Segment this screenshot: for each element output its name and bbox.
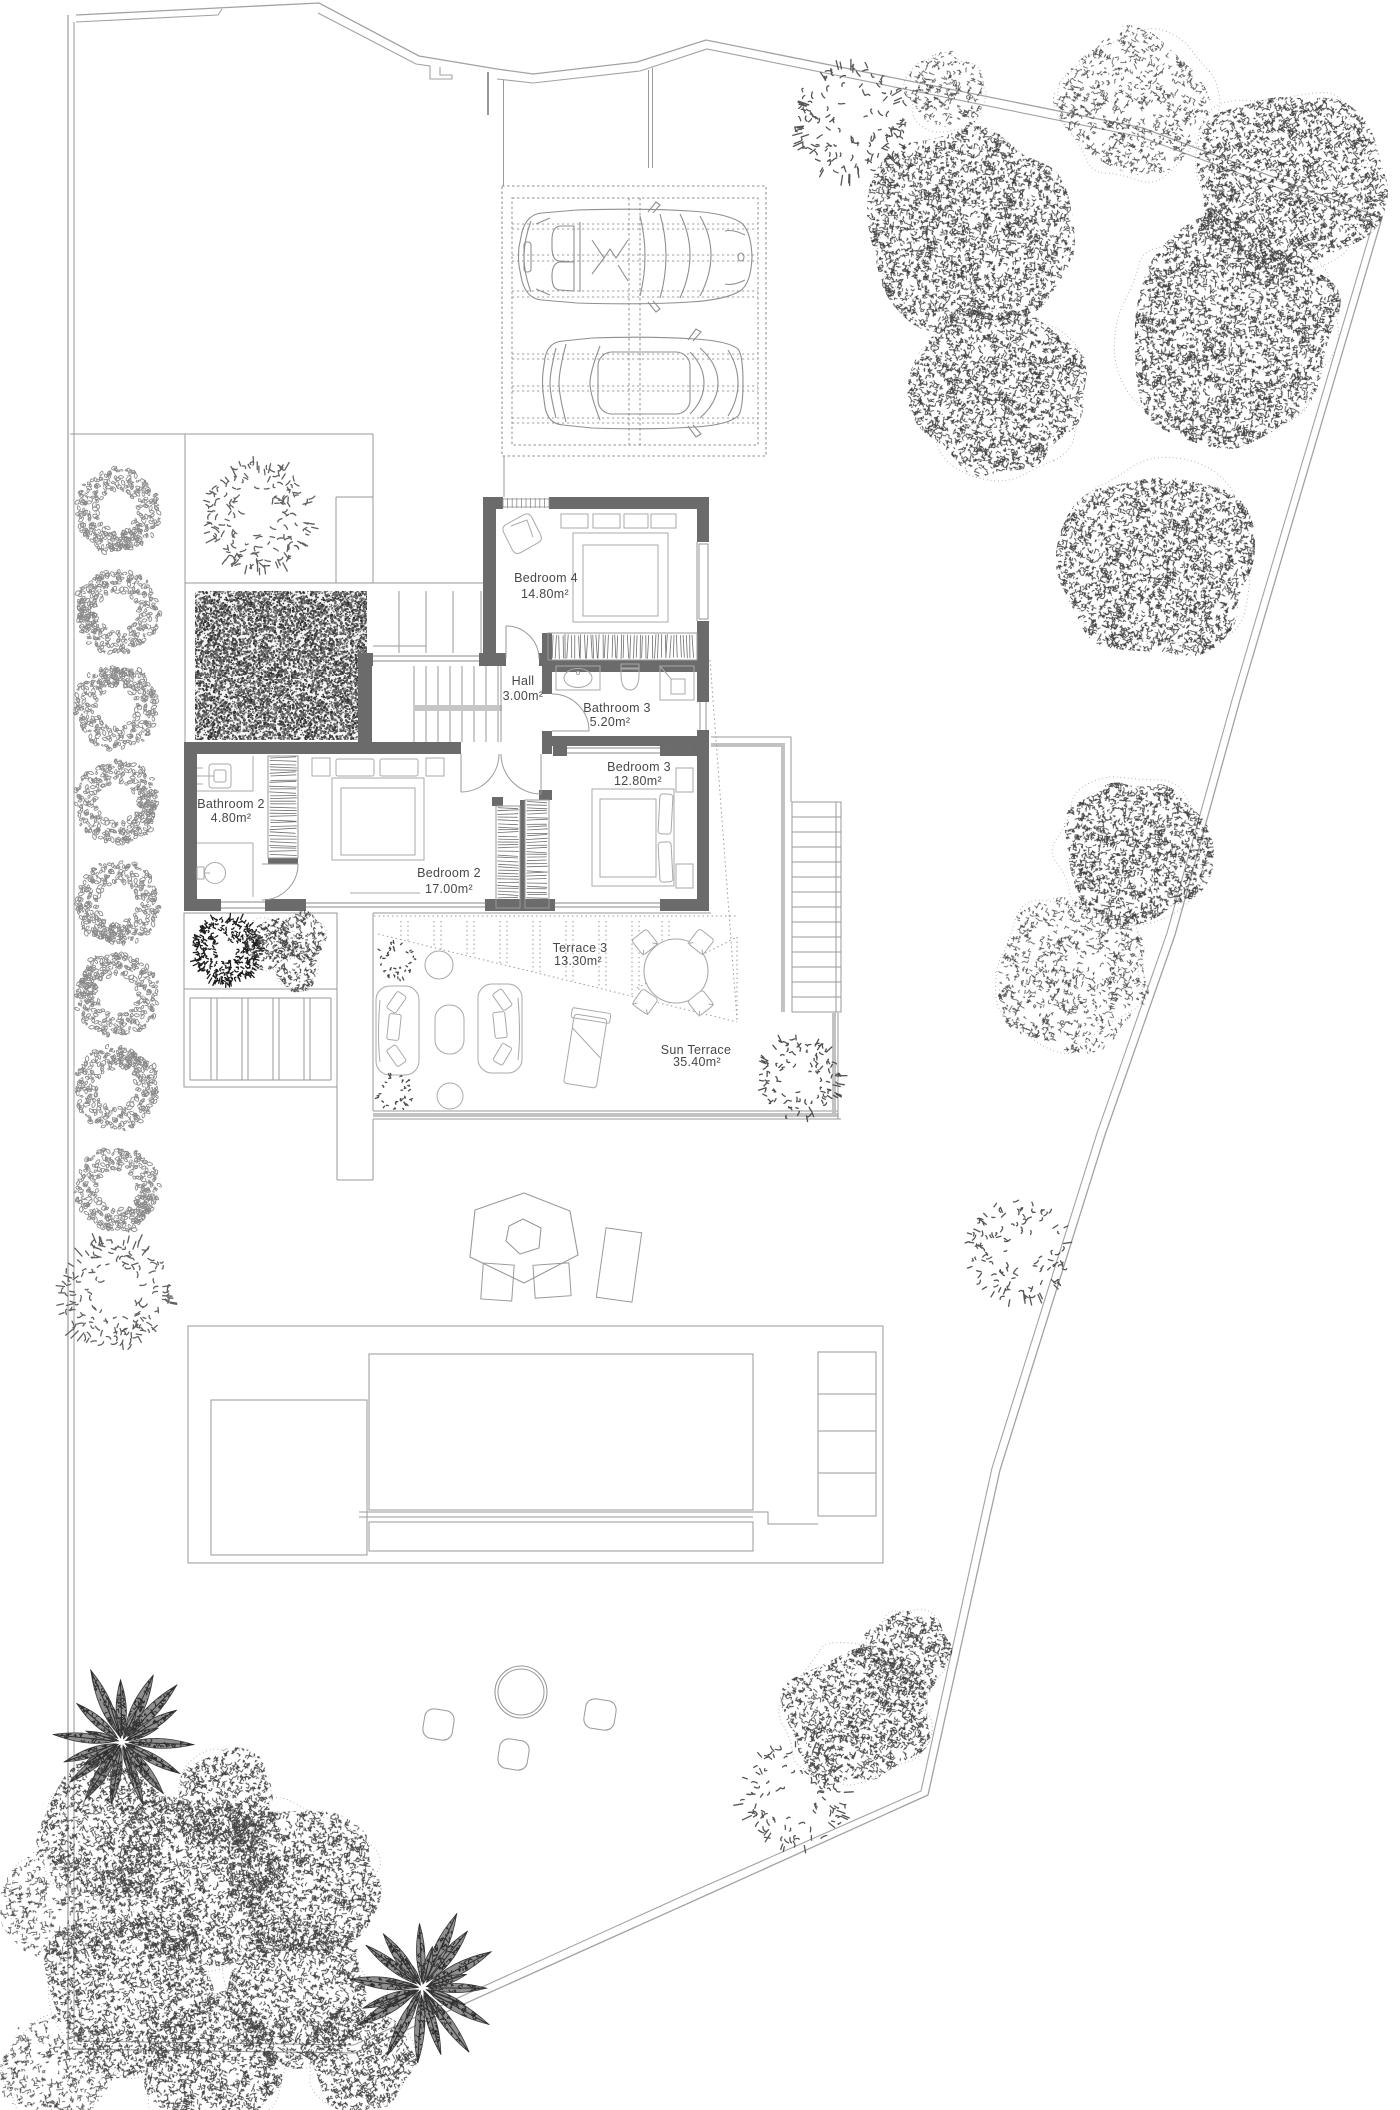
svg-text:35.40m²: 35.40m² [673,1055,721,1069]
svg-text:Hall: Hall [512,674,535,688]
svg-text:5.20m²: 5.20m² [590,715,631,729]
svg-text:12.80m²: 12.80m² [614,774,662,788]
svg-text:Bedroom 2: Bedroom 2 [417,866,481,880]
svg-text:Bedroom 3: Bedroom 3 [607,760,671,774]
svg-text:3.00m²: 3.00m² [503,689,544,703]
svg-text:13.30m²: 13.30m² [554,954,602,968]
svg-text:14.80m²: 14.80m² [521,587,569,601]
svg-text:Bathroom 2: Bathroom 2 [197,797,265,811]
svg-text:Terrace 3: Terrace 3 [553,941,608,955]
svg-text:17.00m²: 17.00m² [425,882,473,896]
svg-text:Bedroom 4: Bedroom 4 [514,571,578,585]
svg-text:4.80m²: 4.80m² [211,811,252,825]
svg-text:Bathroom 3: Bathroom 3 [583,701,651,715]
